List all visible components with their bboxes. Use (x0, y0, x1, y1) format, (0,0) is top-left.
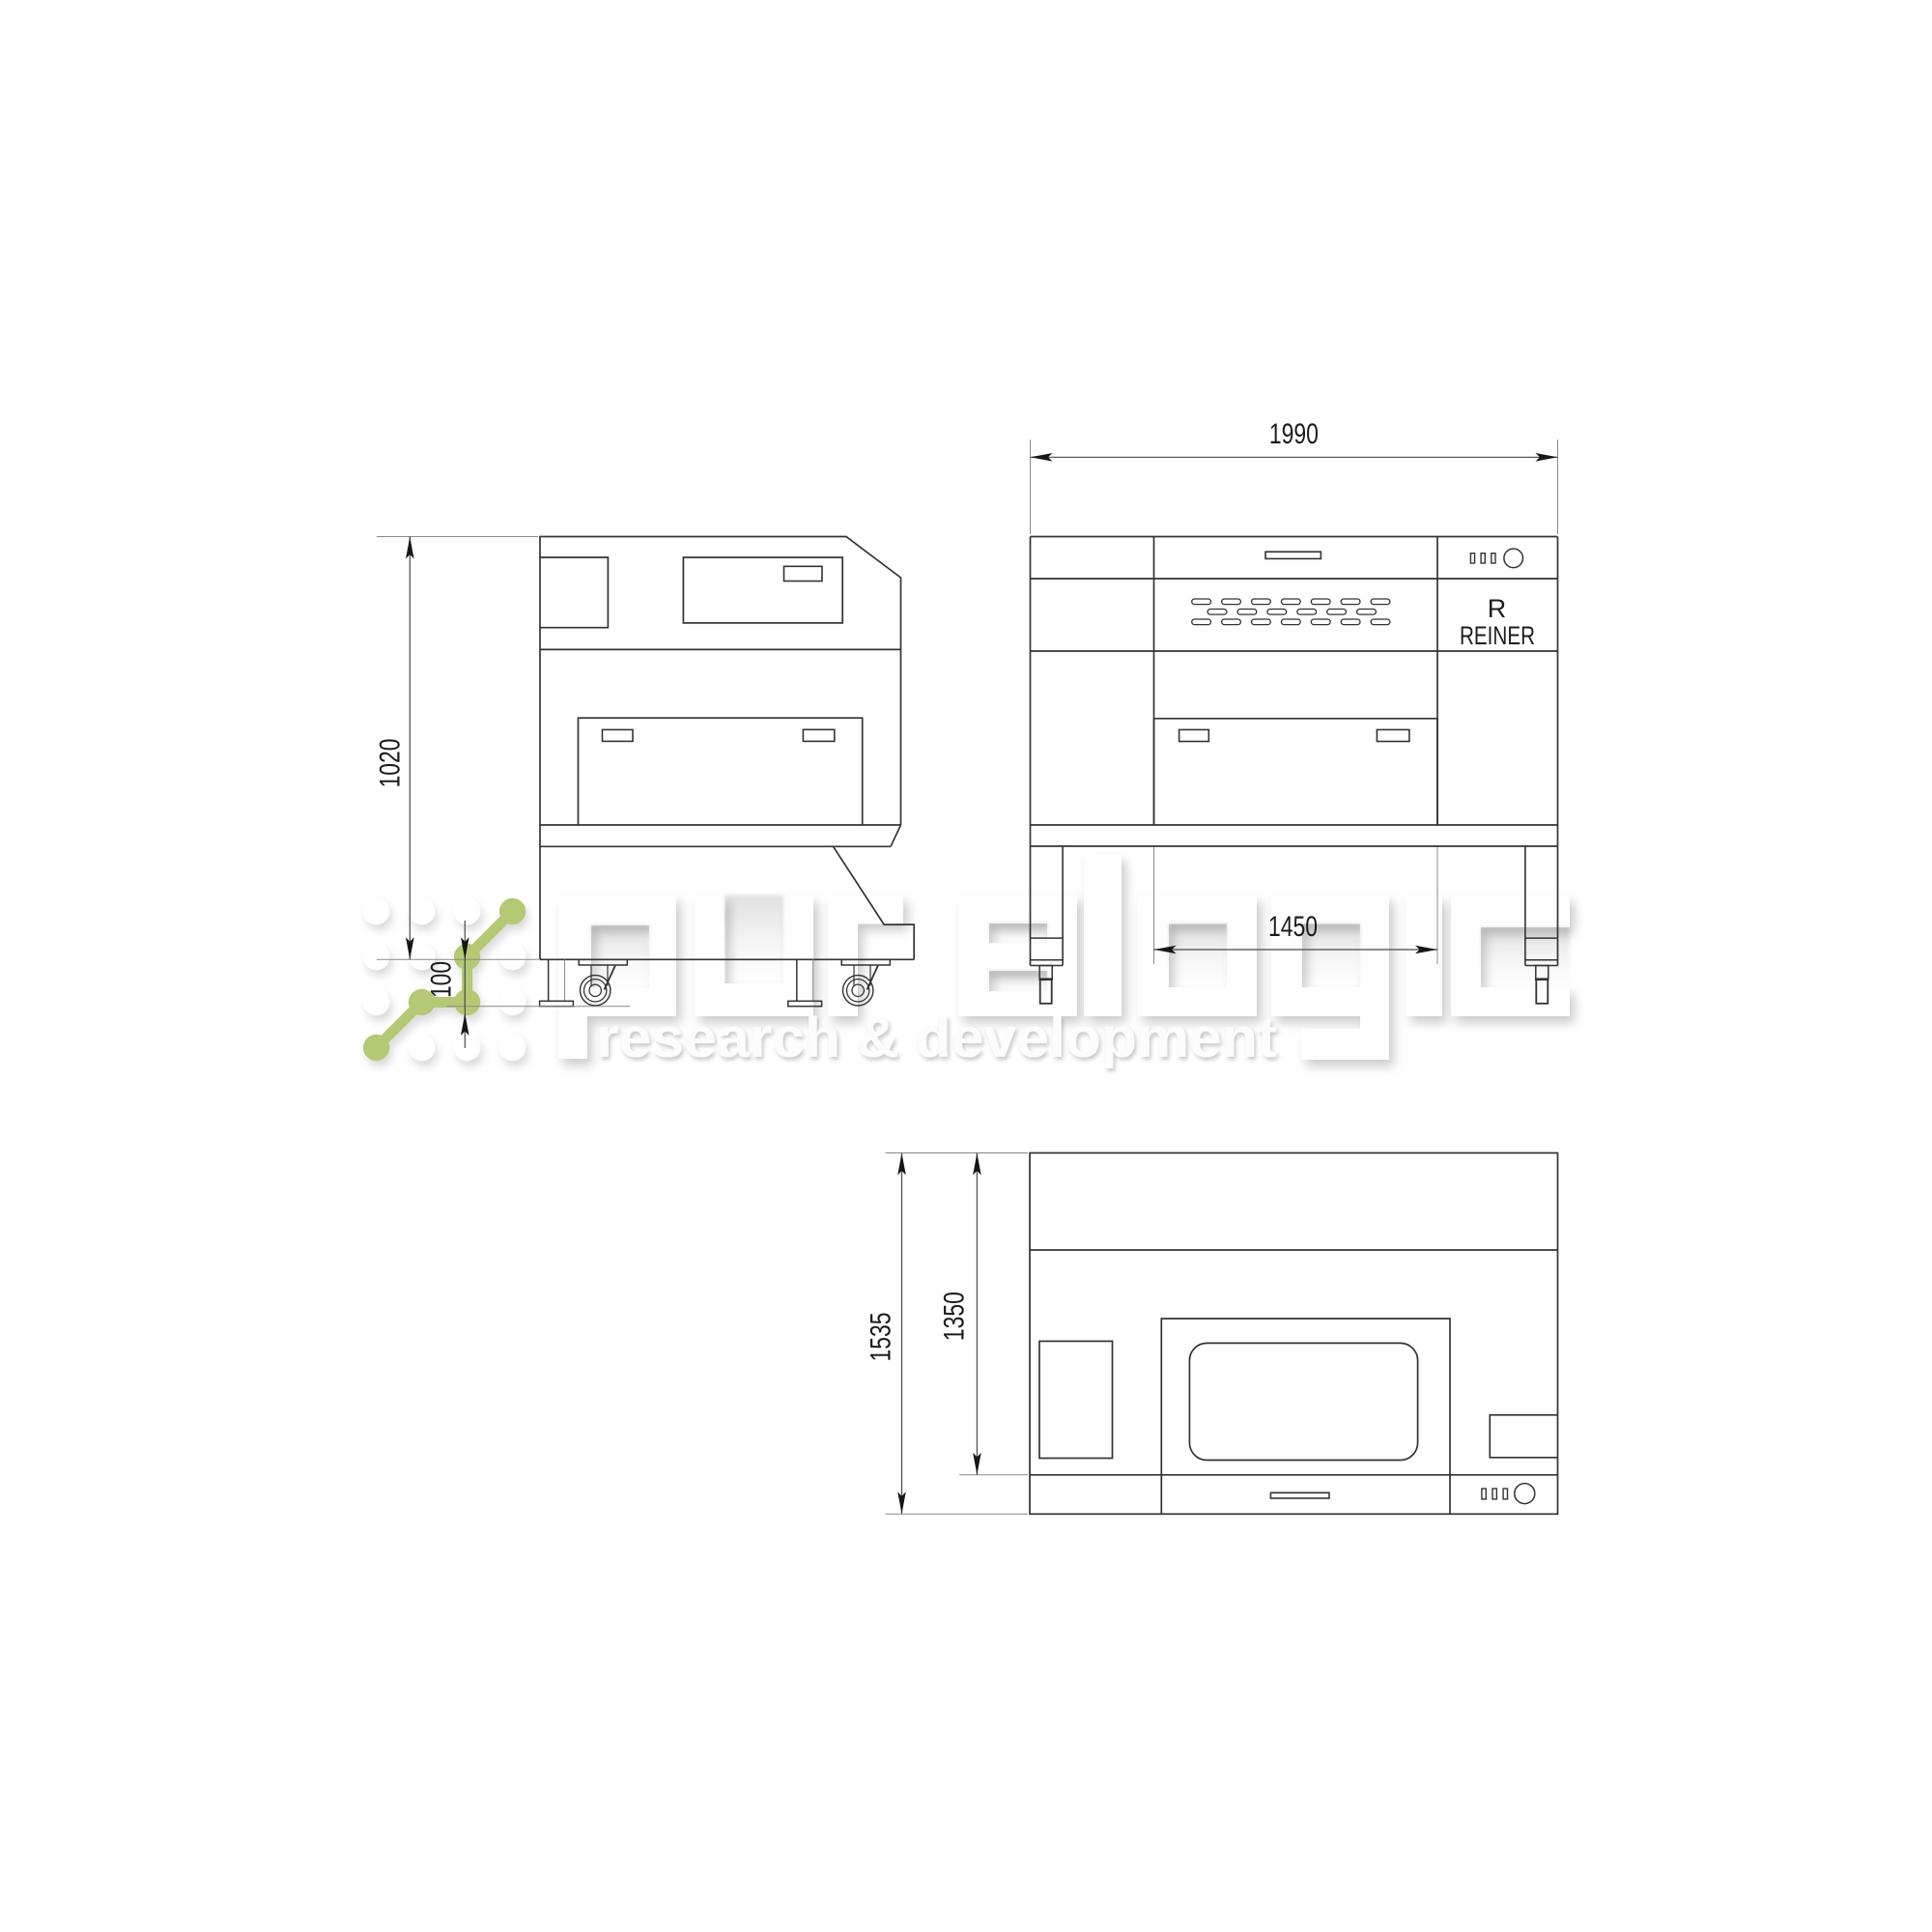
svg-text:R: R (1488, 594, 1507, 623)
svg-text:1450: 1450 (1268, 911, 1318, 943)
svg-text:REINER: REINER (1460, 621, 1535, 650)
svg-text:research & development: research & development (596, 1007, 1277, 1069)
svg-text:1990: 1990 (1269, 418, 1319, 450)
svg-text:100: 100 (426, 961, 458, 998)
svg-text:1535: 1535 (866, 1313, 897, 1362)
svg-text:1020: 1020 (375, 739, 407, 788)
svg-text:1350: 1350 (939, 1292, 971, 1341)
